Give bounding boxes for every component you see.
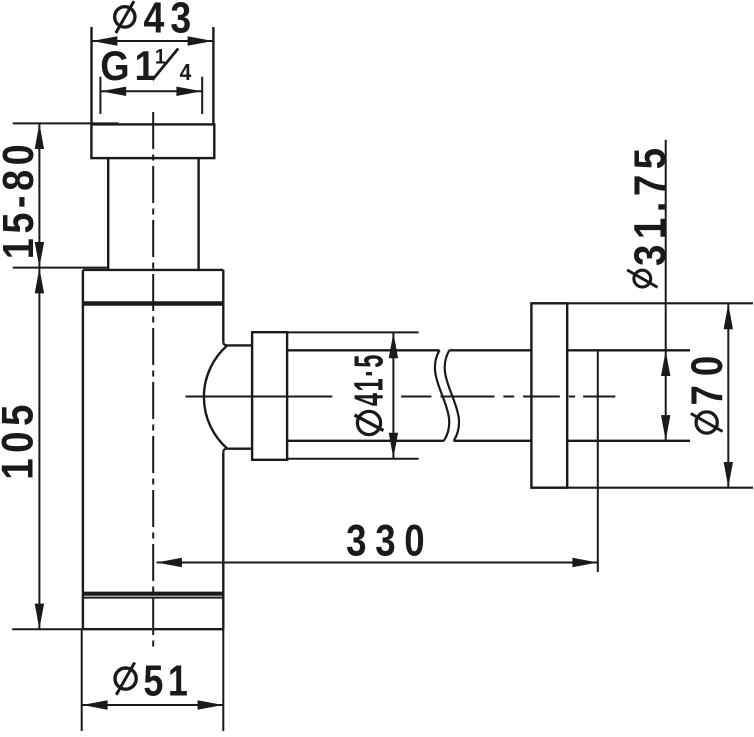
svg-text:4: 4	[180, 59, 192, 85]
svg-text:51: 51	[143, 657, 192, 705]
svg-text:41·5: 41·5	[347, 353, 392, 406]
svg-text:70: 70	[682, 347, 732, 406]
svg-text:31.75: 31.75	[625, 142, 675, 265]
svg-text:15-80: 15-80	[0, 140, 43, 259]
svg-text:330: 330	[346, 515, 433, 565]
svg-text:43: 43	[143, 0, 197, 42]
svg-text:1: 1	[134, 43, 155, 89]
svg-text:105: 105	[0, 399, 42, 480]
svg-text:G: G	[100, 43, 129, 89]
